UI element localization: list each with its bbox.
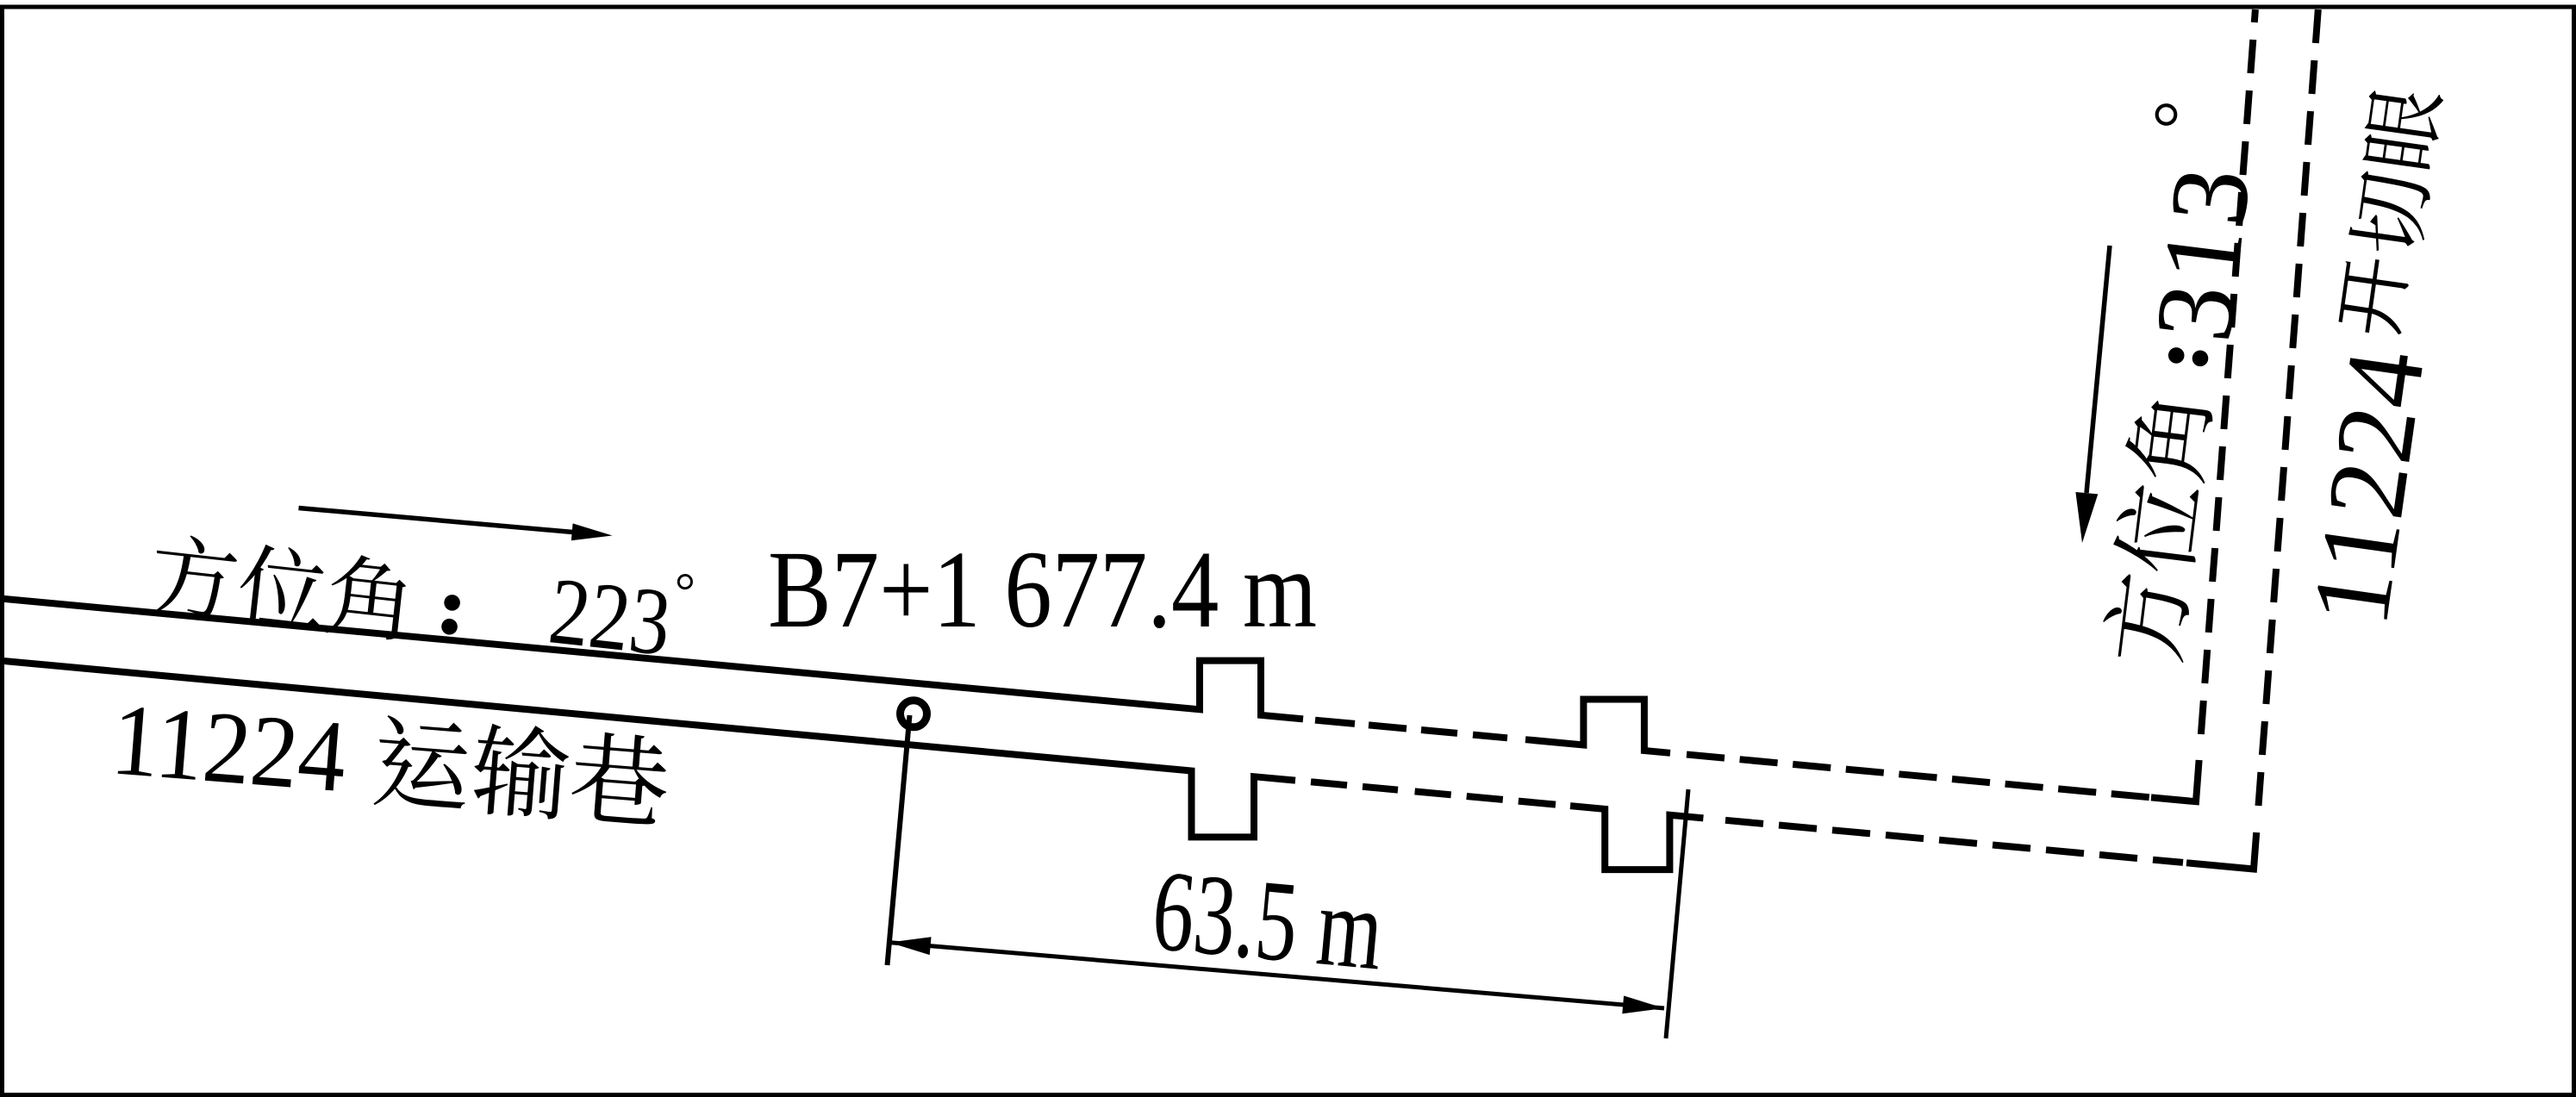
svg-text:63.5 m: 63.5 m [1147,846,1388,994]
svg-text:313: 313 [2131,158,2274,347]
svg-text:B7+1 677.4 m: B7+1 677.4 m [768,528,1317,651]
svg-text:223: 223 [545,558,677,676]
svg-text:11224: 11224 [108,682,351,813]
